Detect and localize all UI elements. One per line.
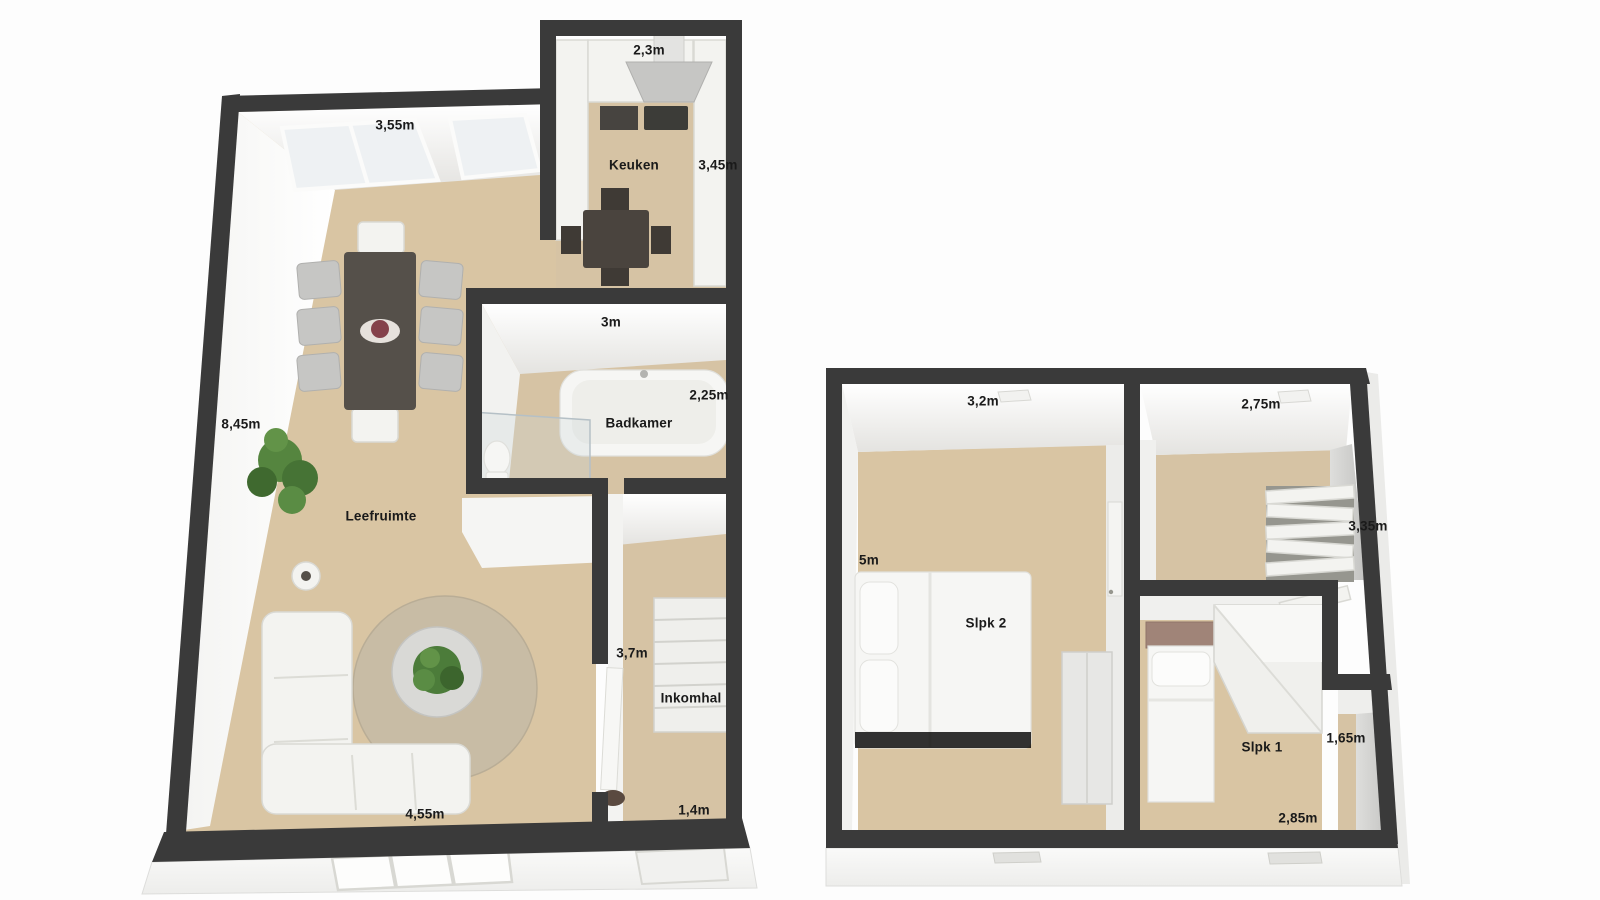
dim-living-bottom: 4,55m [405, 807, 444, 822]
bathroom-north-wall [466, 288, 742, 304]
chair [601, 266, 629, 286]
room-label-bedroom1: Slpk 1 [1242, 740, 1283, 755]
dim-landing-right: 3,35m [1348, 519, 1387, 534]
hall-west-wall-upper [592, 478, 608, 664]
chair [561, 226, 581, 254]
landing-north-wall-face [1140, 384, 1352, 455]
chair [601, 188, 629, 210]
toilet [484, 441, 510, 475]
bathroom-west-wall [466, 288, 482, 490]
sofa-bottom-section [262, 744, 470, 814]
bed-headboard [1146, 622, 1216, 648]
front-door [636, 848, 728, 884]
pillow [860, 660, 898, 732]
kitchen-cabinet-column [556, 40, 588, 240]
north-wall [826, 368, 1370, 384]
west-wall [826, 368, 842, 848]
dim-living-left: 8,45m [221, 417, 260, 432]
facade-vent [1268, 852, 1322, 864]
upper-floor-plan: 3,2m 2,75m 5m 3,35m Slpk 2 Slpk 1 1,65m … [826, 368, 1410, 886]
bedroom2-divider-wall [1124, 384, 1140, 830]
vase-opening [301, 571, 311, 581]
chair [419, 260, 464, 300]
dim-landing-top: 2,75m [1241, 397, 1280, 412]
facade-vent [993, 852, 1041, 863]
room-label-bathroom: Badkamer [606, 416, 673, 431]
south-wall [826, 830, 1398, 848]
chair [419, 306, 464, 346]
dim-kitchen-right: 3,45m [698, 158, 737, 173]
dim-bedroom2-left: 5m [859, 553, 879, 568]
dim-bedroom1-bottom: 2,85m [1278, 811, 1317, 826]
dim-bedroom1-right: 1,65m [1326, 731, 1365, 746]
chair [419, 352, 464, 392]
bedroom2-door [1108, 502, 1122, 596]
room-label-hall: Inkomhal [661, 691, 722, 706]
pillow [1152, 652, 1210, 686]
bathroom-south-wall [466, 478, 596, 494]
room-label-living: Leefruimte [345, 509, 416, 524]
upper-facade [826, 848, 1402, 886]
dim-bathroom-right: 2,25m [689, 388, 728, 403]
kitchen-north-wall [540, 20, 742, 36]
oven [600, 106, 638, 130]
blanket-edge [855, 732, 1031, 748]
dim-living-top: 3,55m [375, 118, 414, 133]
chair [651, 226, 671, 254]
chair [358, 222, 404, 254]
room-label-kitchen: Keuken [609, 158, 659, 173]
kitchen-table [583, 210, 649, 268]
bath-faucet [640, 370, 648, 378]
bathroom-south-wall-2 [624, 478, 742, 494]
ground-floor-plan: 3,55m 2,3m Keuken 3,45m 3m 2,25m Badkame… [142, 20, 757, 894]
room-label-bedroom2: Slpk 2 [966, 616, 1007, 631]
cooktop [644, 106, 688, 130]
dim-kitchen-top: 2,3m [633, 43, 665, 58]
chair [297, 352, 342, 392]
ceiling-vent [998, 390, 1031, 402]
chair [297, 306, 342, 346]
dim-bedroom2-top: 3,2m [967, 394, 999, 409]
skylight-window [450, 115, 540, 178]
bathroom-south-wall-face [462, 496, 608, 568]
chair [297, 260, 342, 300]
dim-bathroom-top: 3m [601, 315, 621, 330]
door-handle [1109, 590, 1113, 594]
table-centerpiece [371, 320, 389, 338]
chair [352, 408, 398, 442]
landing-west-wall-face [1140, 440, 1156, 580]
kitchen-west-wall [540, 24, 556, 240]
floorplan-canvas: 3,55m 2,3m Keuken 3,45m 3m 2,25m Badkame… [0, 0, 1600, 900]
dim-hall-left: 3,7m [616, 646, 648, 661]
dim-hall-bottom: 1,4m [678, 803, 710, 818]
landing-bedroom1-wall [1140, 580, 1322, 596]
hall-west-wall-lower [592, 792, 608, 826]
nook-north-wall [1338, 674, 1392, 690]
nook-west-wall [1322, 580, 1338, 690]
pillow [860, 582, 898, 654]
ceiling-vent [1278, 390, 1311, 403]
east-wall [726, 20, 742, 826]
